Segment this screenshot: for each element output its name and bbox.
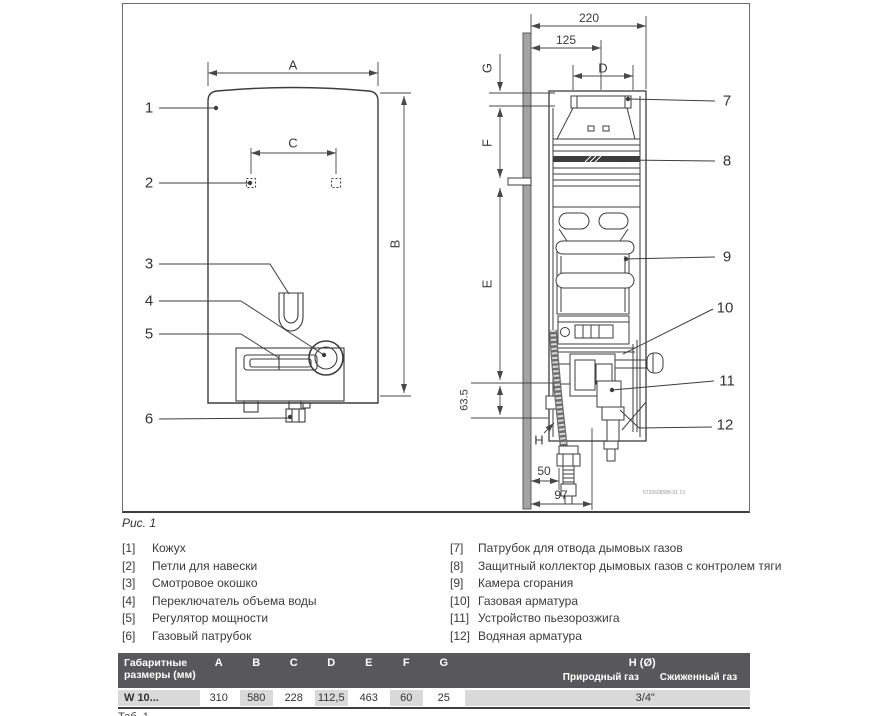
callout-1: 1 bbox=[145, 101, 153, 116]
col-header-h: H (Ø) bbox=[463, 653, 751, 669]
col-header-b: B bbox=[238, 653, 276, 688]
table-row: W 10... 310 580 228 112,5 463 60 25 3/4" bbox=[118, 690, 750, 706]
col-header-c: C bbox=[275, 653, 313, 688]
side-dimensions bbox=[471, 14, 646, 510]
legend-item-number: [10] bbox=[450, 593, 478, 611]
callout-11: 11 bbox=[719, 374, 735, 389]
table-bottom-rule bbox=[118, 707, 750, 709]
callout-7: 7 bbox=[723, 94, 731, 109]
callout-5: 5 bbox=[145, 327, 153, 342]
col-header-lpg: Сжиженный газ bbox=[647, 672, 750, 683]
dim-label-63-5: 63.5 bbox=[460, 389, 471, 410]
callout-6: 6 bbox=[145, 412, 153, 427]
legend-item-8: [8]Защитный коллектор дымовых газов с ко… bbox=[450, 558, 775, 576]
manual-page: 1 2 3 4 5 6 7 8 9 10 11 12 A B C D G F E… bbox=[0, 0, 876, 716]
legend-item-text: Водяная арматура bbox=[478, 628, 582, 646]
legend-item-text: Петли для навески bbox=[152, 558, 257, 576]
legend-item-text: Устройство пьезорозжига bbox=[478, 610, 620, 628]
callout-10: 10 bbox=[717, 301, 734, 316]
legend-item-number: [2] bbox=[122, 558, 152, 576]
dim-label-f: F bbox=[481, 139, 494, 147]
legend-item-7: [7]Патрубок для отвода дымовых газов bbox=[450, 540, 775, 558]
legend-item-number: [11] bbox=[450, 610, 478, 628]
dim-label-e: E bbox=[481, 280, 494, 289]
legend-item-text: Камера сгорания bbox=[478, 575, 573, 593]
table-header-row: Габаритные размеры (мм) A B C D E F G H … bbox=[118, 653, 750, 688]
legend-item-text: Газовая арматура bbox=[478, 593, 578, 611]
figure-caption: Рис. 1 bbox=[122, 516, 156, 530]
dim-label-220: 220 bbox=[579, 12, 599, 24]
value-b: 580 bbox=[238, 690, 276, 706]
table-caption: Таб. 1 bbox=[118, 711, 149, 716]
legend-item-10: [10]Газовая арматура bbox=[450, 593, 775, 611]
value-d: 112,5 bbox=[313, 690, 351, 706]
figure-1-technical-drawing: 1 2 3 4 5 6 7 8 9 10 11 12 A B C D G F E… bbox=[122, 3, 750, 513]
callout-2: 2 bbox=[145, 176, 153, 191]
callout-12: 12 bbox=[717, 418, 734, 433]
dim-label-97: 97 bbox=[554, 489, 567, 501]
dim-label-a: A bbox=[289, 59, 298, 72]
table-header-label: Габаритные размеры (мм) bbox=[118, 653, 200, 688]
dimensions-table: Габаритные размеры (мм) A B C D E F G H … bbox=[118, 653, 750, 709]
col-header-natural-gas: Природный газ bbox=[463, 672, 648, 683]
legend-item-text: Переключатель объема воды bbox=[152, 593, 317, 611]
legend-item-text: Смотровое окошко bbox=[152, 575, 258, 593]
legend-item-number: [1] bbox=[122, 540, 152, 558]
drawing-code: 6720608588-01.1V bbox=[643, 490, 686, 496]
legend-left-column: [1]Кожух [2]Петли для навески [3]Смотров… bbox=[122, 540, 437, 645]
legend-item-number: [3] bbox=[122, 575, 152, 593]
legend-item-5: [5]Регулятор мощности bbox=[122, 610, 437, 628]
legend-item-text: Газовый патрубок bbox=[152, 628, 251, 646]
front-leaders bbox=[159, 108, 324, 419]
legend-item-2: [2]Петли для навески bbox=[122, 558, 437, 576]
dim-label-50: 50 bbox=[537, 465, 550, 477]
legend-item-text: Регулятор мощности bbox=[152, 610, 268, 628]
callout-9: 9 bbox=[723, 250, 731, 265]
callout-3: 3 bbox=[145, 257, 153, 272]
value-e: 463 bbox=[350, 690, 388, 706]
col-header-f: F bbox=[388, 653, 426, 688]
wall bbox=[523, 33, 531, 509]
value-f: 60 bbox=[388, 690, 426, 706]
legend-item-text: Патрубок для отвода дымовых газов bbox=[478, 540, 683, 558]
value-h: 3/4" bbox=[463, 690, 751, 706]
legend-item-number: [9] bbox=[450, 575, 478, 593]
dim-label-d: D bbox=[598, 62, 607, 75]
legend-item-11: [11]Устройство пьезорозжига bbox=[450, 610, 775, 628]
legend-item-12: [12]Водяная арматура bbox=[450, 628, 775, 646]
legend-item-4: [4]Переключатель объема воды bbox=[122, 593, 437, 611]
col-header-a: A bbox=[200, 653, 238, 688]
callout-8: 8 bbox=[723, 154, 731, 169]
legend-item-number: [4] bbox=[122, 593, 152, 611]
legend-item-text: Защитный коллектор дымовых газов с контр… bbox=[478, 558, 781, 576]
value-a: 310 bbox=[200, 690, 238, 706]
value-g: 25 bbox=[425, 690, 463, 706]
row-label: W 10... bbox=[118, 690, 200, 706]
legend-item-number: [8] bbox=[450, 558, 478, 576]
legend-item-1: [1]Кожух bbox=[122, 540, 437, 558]
legend-item-number: [6] bbox=[122, 628, 152, 646]
value-c: 228 bbox=[275, 690, 313, 706]
legend-right-column: [7]Патрубок для отвода дымовых газов [8]… bbox=[450, 540, 775, 645]
dim-label-b: B bbox=[389, 240, 402, 249]
col-header-e: E bbox=[350, 653, 388, 688]
col-header-g: G bbox=[425, 653, 463, 688]
dim-label-h: H bbox=[534, 434, 543, 447]
legend-item-6: [6]Газовый патрубок bbox=[122, 628, 437, 646]
callout-4: 4 bbox=[145, 294, 153, 309]
dim-label-c: C bbox=[288, 137, 297, 150]
legend-item-9: [9]Камера сгорания bbox=[450, 575, 775, 593]
water-heater-drawing bbox=[123, 4, 749, 511]
side-leaders bbox=[612, 99, 715, 428]
legend-item-3: [3]Смотровое окошко bbox=[122, 575, 437, 593]
legend-item-text: Кожух bbox=[152, 540, 186, 558]
legend-item-number: [7] bbox=[450, 540, 478, 558]
legend-item-number: [5] bbox=[122, 610, 152, 628]
col-header-h-group: H (Ø) Природный газ Сжиженный газ bbox=[463, 653, 751, 688]
col-header-d: D bbox=[313, 653, 351, 688]
dim-label-g: G bbox=[481, 63, 494, 73]
dim-label-125: 125 bbox=[556, 34, 576, 46]
legend-item-number: [12] bbox=[450, 628, 478, 646]
